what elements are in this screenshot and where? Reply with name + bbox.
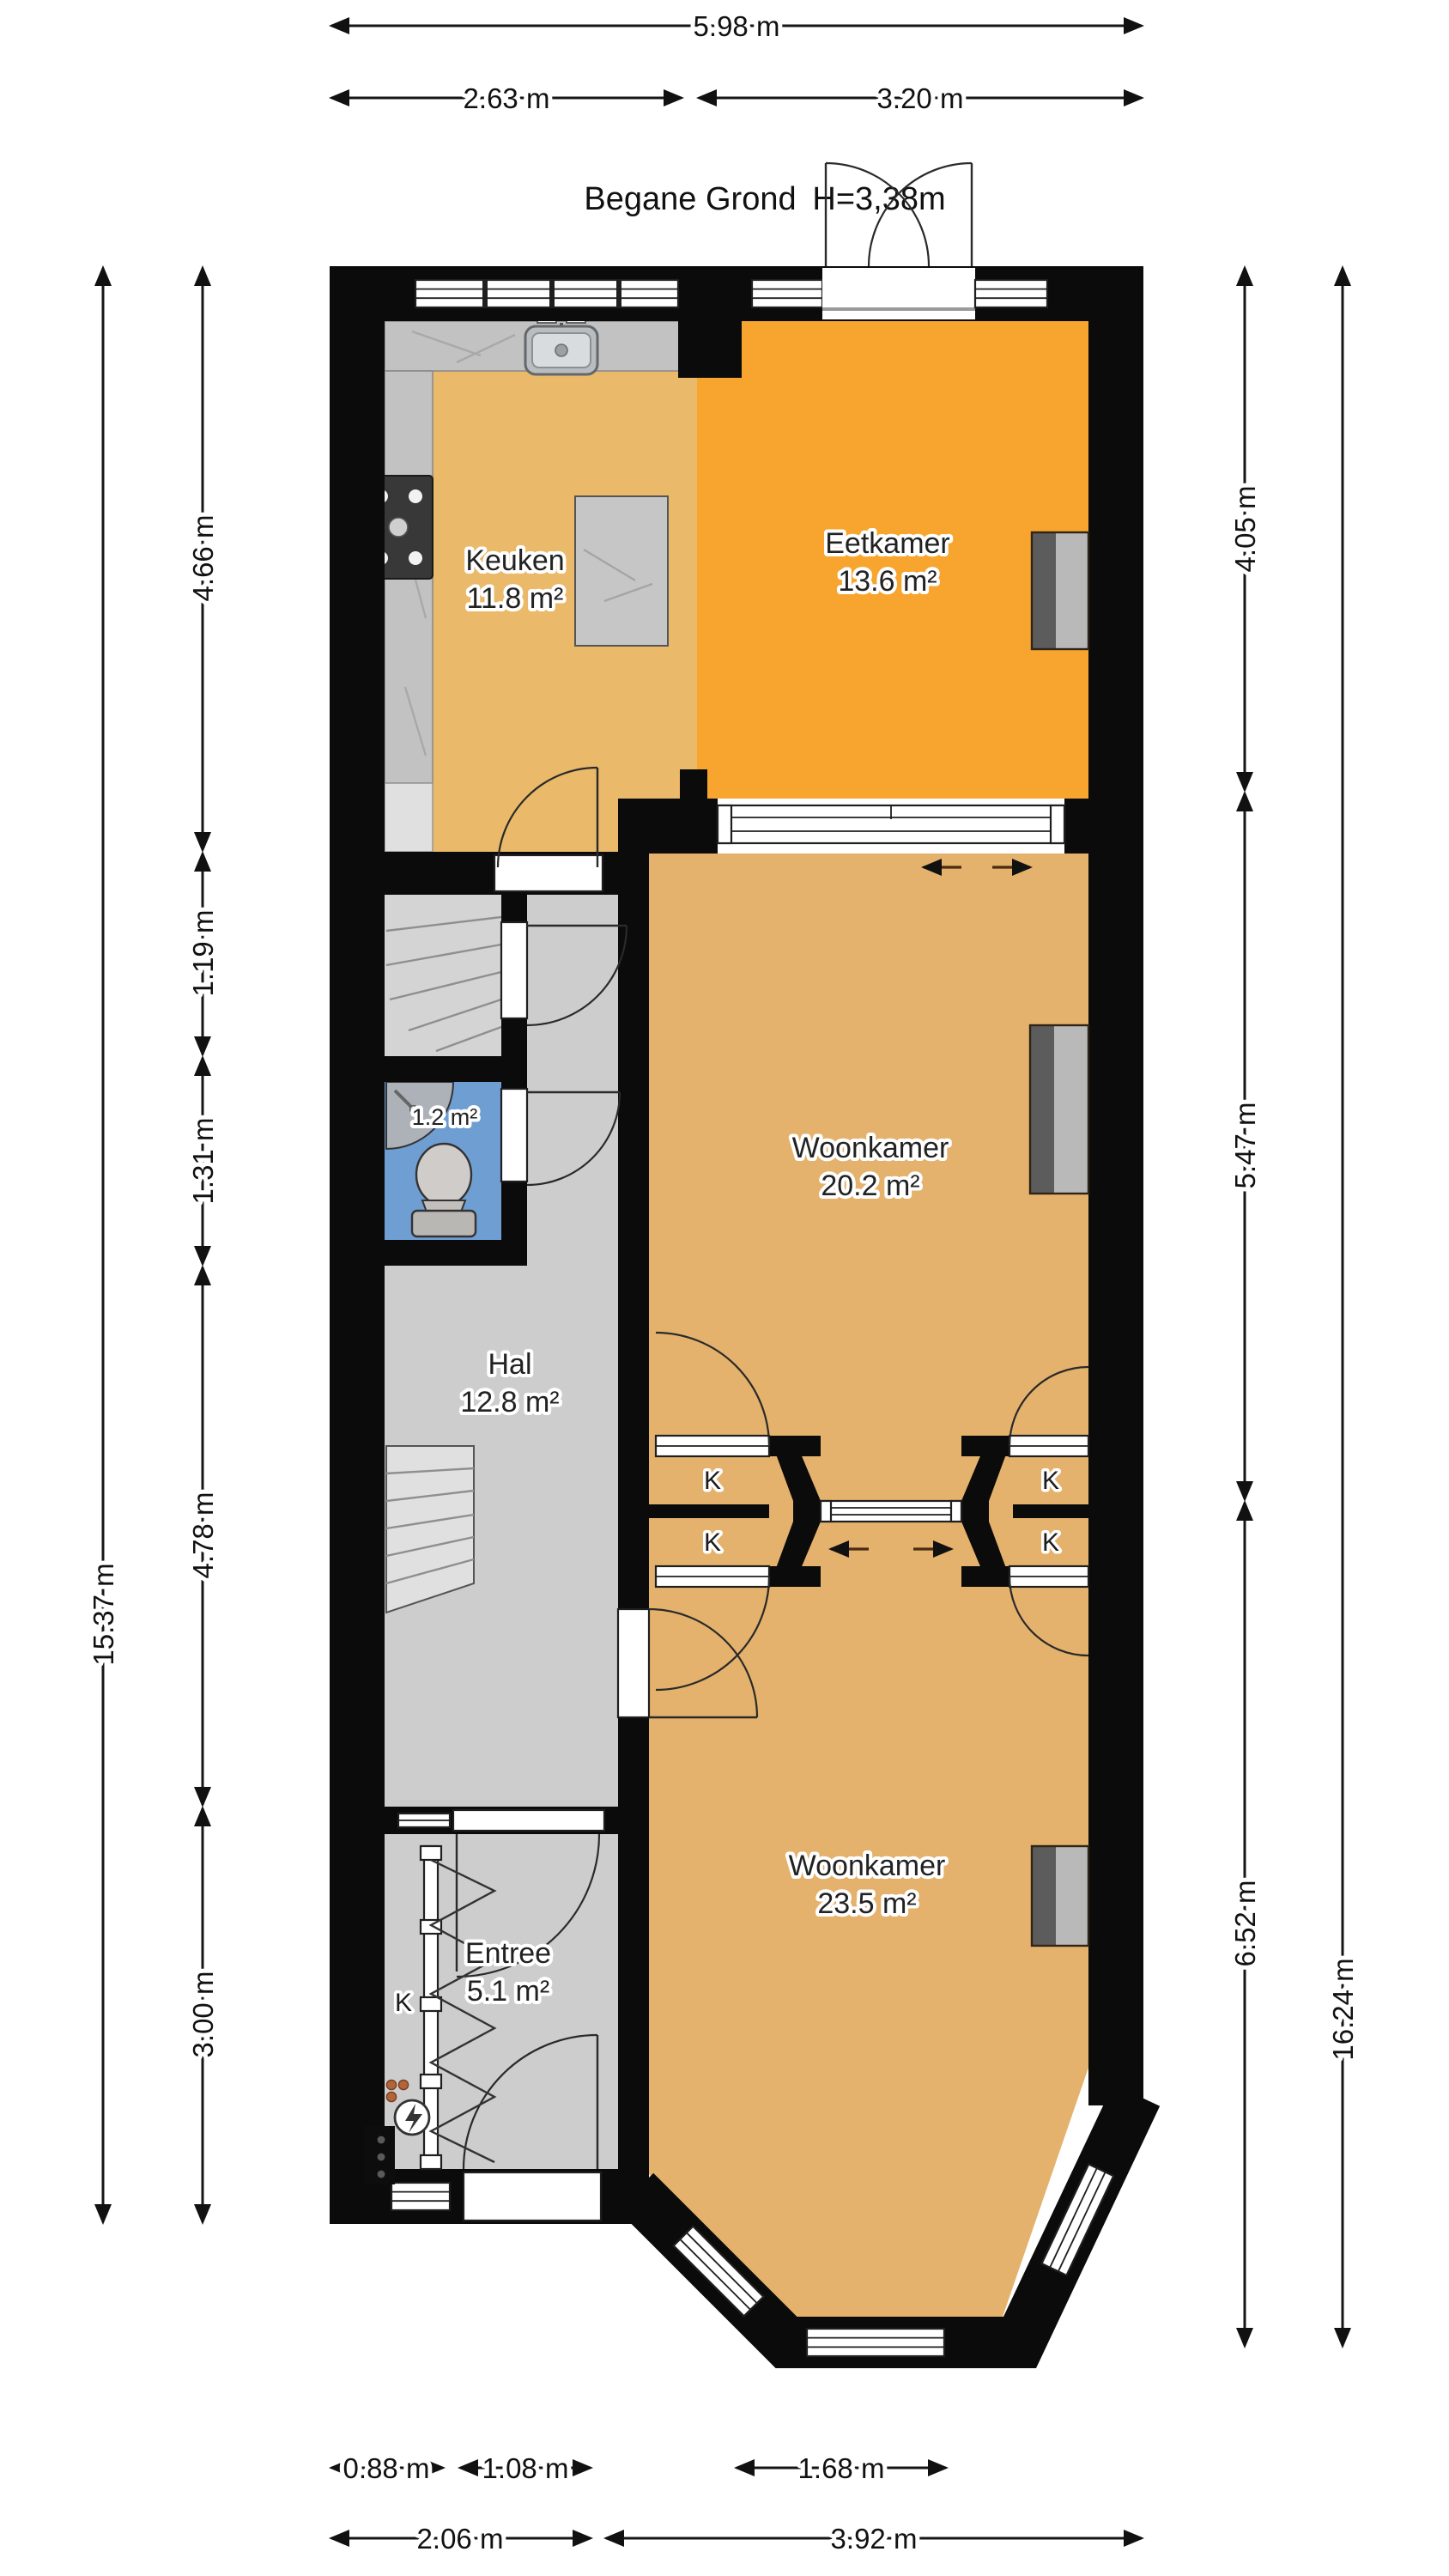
room-woonkamer-voor-floor: [649, 1587, 1088, 2322]
dim-label: 1.31 m: [187, 1118, 219, 1205]
room-label-woonkamer-voor: Woonkamer: [789, 1850, 946, 1882]
toilet-icon: [412, 1144, 476, 1236]
entree-partition-glass: [398, 1814, 450, 1827]
dim-label: 4.78 m: [187, 1492, 219, 1579]
wall-left: [330, 266, 385, 2224]
dim-label: 0.88 m: [343, 2452, 430, 2484]
dim-label: 3.00 m: [187, 1971, 219, 2058]
wall-ensuite-left: [618, 799, 718, 854]
dim-label: 1.08 m: [482, 2452, 569, 2484]
room-label-keuken: Keuken: [465, 544, 564, 577]
divider-slab-left: [649, 1504, 769, 1518]
floor-title: Begane Grond: [584, 181, 796, 217]
room-label-hal: Hal: [488, 1348, 531, 1381]
window-entree: [391, 2183, 450, 2210]
dim-label: 5.98 m: [694, 10, 780, 42]
wall-ensuite-right: [1064, 799, 1143, 854]
room-label-eetkamer: Eetkamer: [825, 527, 950, 560]
electric-meter-icon: [395, 2100, 429, 2135]
dim-left-seg-3: 4.78 m: [187, 1267, 219, 1805]
wall-keuken-eetkamer-stub: [678, 266, 742, 378]
dim-label: 16.24 m: [1327, 1958, 1359, 2060]
room-area-toilet: 1.2 m²: [412, 1104, 478, 1130]
dim-bottom-row2-0: 2.06 m: [331, 2523, 591, 2555]
dim-label: 5.47 m: [1229, 1103, 1261, 1189]
meter-dot: [386, 2092, 396, 2101]
dim-label: 1.19 m: [187, 910, 219, 997]
room-floors: [385, 321, 1088, 2322]
dim-label: 4.05 m: [1229, 486, 1261, 573]
room-area-hal: 12.8 m²: [460, 1386, 559, 1419]
dim-left-total: 15.37 m: [88, 268, 119, 2222]
wall-right: [1088, 266, 1143, 2104]
closet-label: K: [1042, 1528, 1059, 1557]
kitchen-appliance: [385, 783, 433, 852]
room-area-entree: 5.1 m²: [467, 1975, 549, 2008]
meter-dot: [386, 2080, 396, 2089]
closet-label: K: [395, 1989, 412, 2017]
dim-label: 1.68 m: [798, 2452, 885, 2484]
dim-label: 6.52 m: [1229, 1880, 1261, 1967]
dim-bottom-row2-1: 3.92 m: [606, 2523, 1142, 2555]
room-label-woonkamer-achter: Woonkamer: [792, 1132, 949, 1164]
dim-left-seg-0: 4.66 m: [187, 268, 219, 850]
dim-right-seg-2: 6.52 m: [1229, 1503, 1261, 2346]
floorplan-canvas: Begane Grond H=3,38m: [0, 0, 1449, 2576]
room-eetkamer-floor: [697, 321, 1088, 799]
dim-left-seg-1: 1.19 m: [187, 854, 219, 1054]
radiator: [1032, 532, 1088, 649]
closet-label: K: [704, 1467, 721, 1495]
meter-dot: [398, 2080, 408, 2089]
window-eetkamer-left: [752, 280, 822, 307]
dim-left-seg-4: 3.00 m: [187, 1808, 219, 2222]
kitchen-island: [575, 496, 668, 646]
closet-label: K: [704, 1528, 721, 1557]
dim-label: 3.92 m: [831, 2523, 918, 2555]
divider-slab-right: [1013, 1504, 1143, 1518]
radiator: [1032, 1846, 1088, 1946]
room-area-eetkamer: 13.6 m²: [838, 565, 937, 598]
dim-bottom-row1-2: 1.68 m: [737, 2452, 946, 2484]
dim-label: 15.37 m: [88, 1563, 119, 1665]
room-area-woonkamer-voor: 23.5 m²: [817, 1887, 916, 1920]
dim-top-total: 5.98 m: [331, 10, 1142, 42]
dim-top-seg-1: 3.20 m: [699, 82, 1142, 114]
window-eetkamer-right: [975, 280, 1047, 307]
dim-right-total: 16.24 m: [1327, 268, 1359, 2346]
dim-label: 4.66 m: [187, 515, 219, 602]
bay-window-bottom: [807, 2329, 944, 2356]
closet-label: K: [1042, 1467, 1059, 1495]
wall-toilet-bottom: [385, 1240, 527, 1266]
dim-bottom-row1-1: 1.08 m: [460, 2452, 591, 2484]
radiator: [1030, 1025, 1088, 1194]
dim-left-seg-2: 1.31 m: [187, 1058, 219, 1264]
dim-right-seg-0: 4.05 m: [1229, 268, 1261, 790]
dim-right-seg-1: 5.47 m: [1229, 793, 1261, 1499]
room-area-keuken: 11.8 m²: [467, 582, 564, 615]
room-label-entree: Entree: [465, 1937, 551, 1970]
meter-box-icon: [364, 2126, 395, 2184]
ceiling-height-label: H=3,38m: [812, 181, 945, 217]
stairs-down-icon: [386, 1446, 474, 1613]
dim-top-seg-0: 2.63 m: [331, 82, 682, 114]
window-keuken: [415, 280, 678, 307]
dim-label: 2.06 m: [417, 2523, 504, 2555]
wall-hal-right: [618, 799, 649, 2224]
dim-bottom-row1-0: 0.88 m: [331, 2452, 443, 2484]
room-area-woonkamer-achter: 20.2 m²: [821, 1170, 919, 1202]
dim-label: 2.63 m: [464, 82, 550, 114]
dim-label: 3.20 m: [877, 82, 964, 114]
